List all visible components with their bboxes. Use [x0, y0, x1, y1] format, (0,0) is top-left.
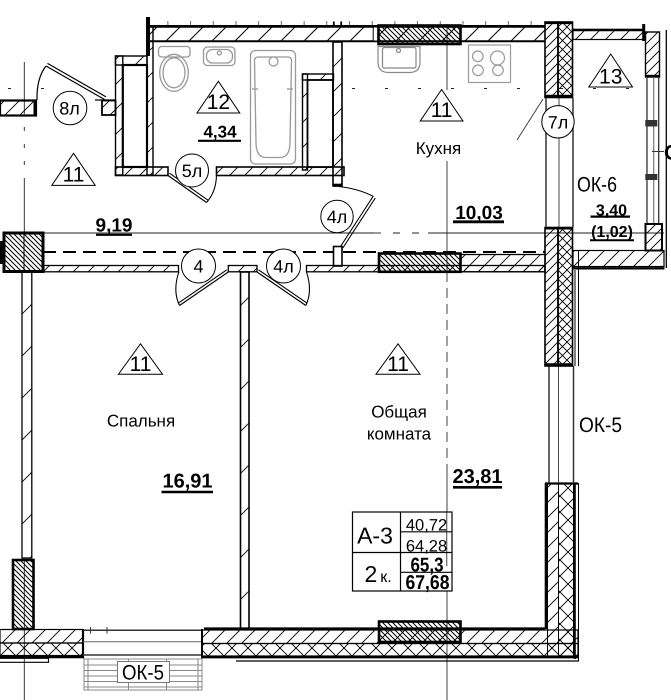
svg-text:4л: 4л [327, 207, 348, 227]
svg-text:11: 11 [63, 164, 85, 187]
svg-text:Общая: Общая [371, 403, 427, 422]
svg-text:23,81: 23,81 [452, 466, 502, 488]
svg-text:64,28: 64,28 [406, 538, 447, 556]
svg-text:7л: 7л [548, 112, 569, 132]
svg-text:ОК-6: ОК-6 [577, 173, 617, 196]
svg-text:комната: комната [367, 425, 432, 444]
svg-text:13: 13 [599, 66, 622, 89]
svg-text:4л: 4л [273, 257, 294, 277]
svg-text:11: 11 [387, 353, 409, 376]
svg-text:4: 4 [193, 257, 203, 277]
svg-text:8л: 8л [59, 99, 80, 119]
svg-text:11: 11 [431, 99, 453, 122]
svg-text:16,91: 16,91 [162, 471, 212, 493]
svg-text:ОК-5: ОК-5 [122, 662, 164, 685]
svg-text:9,19: 9,19 [96, 216, 133, 237]
svg-text:5л: 5л [182, 161, 203, 181]
svg-text:40,72: 40,72 [406, 517, 447, 535]
svg-text:А-3: А-3 [357, 523, 393, 549]
svg-text:12: 12 [207, 91, 230, 114]
svg-text:11: 11 [130, 353, 152, 376]
svg-text:Кухня: Кухня [416, 139, 462, 158]
svg-text:67,68: 67,68 [406, 572, 450, 594]
svg-text:О: О [664, 142, 671, 165]
svg-text:4,34: 4,34 [203, 123, 237, 142]
svg-text:ОК-5: ОК-5 [579, 414, 622, 437]
svg-text:Спальня: Спальня [107, 412, 175, 431]
svg-text:(1,02): (1,02) [591, 224, 633, 241]
